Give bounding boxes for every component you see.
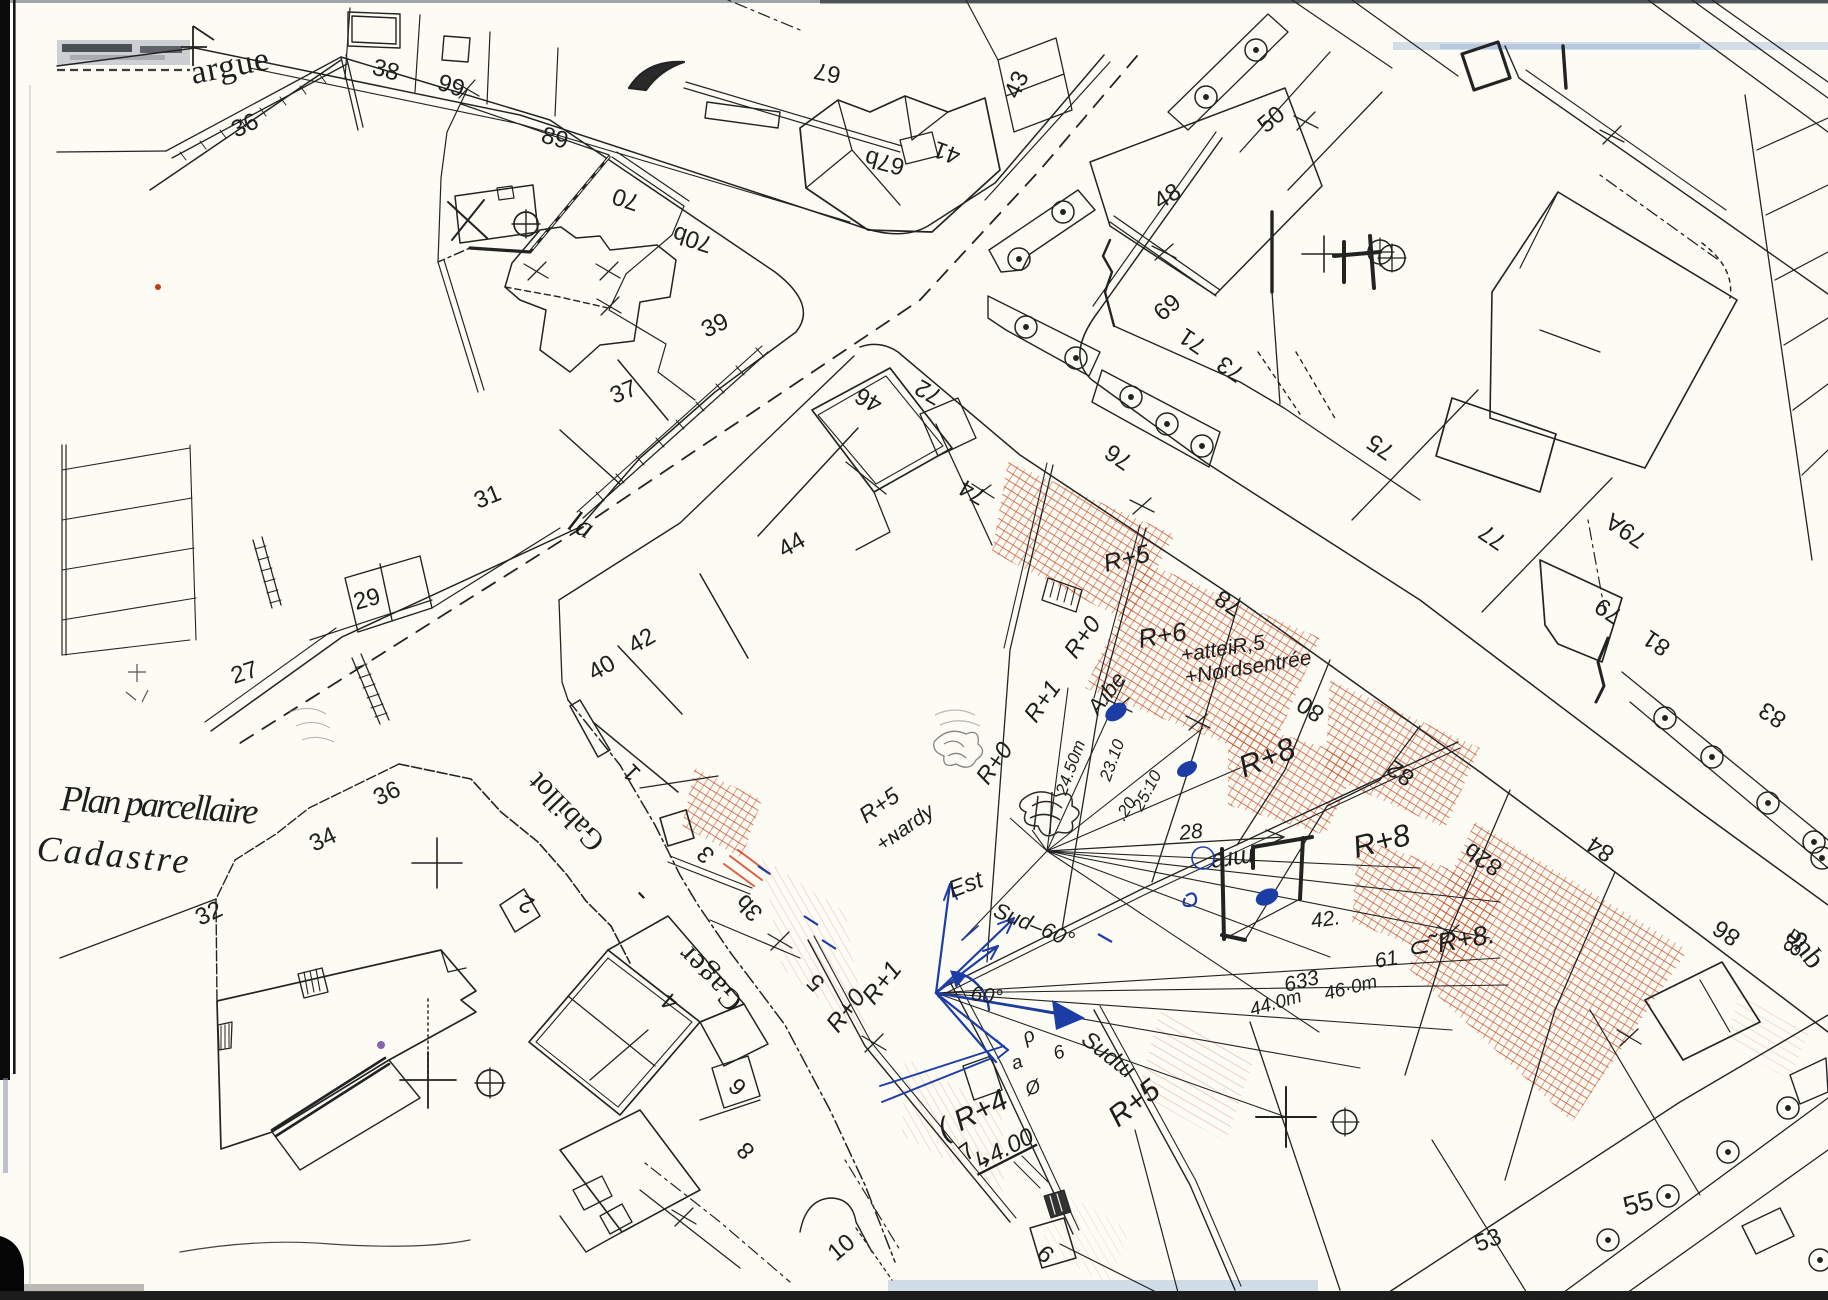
svg-text:42.: 42.	[1309, 906, 1341, 933]
svg-text:28: 28	[1177, 820, 1204, 845]
svg-text:67: 67	[812, 57, 844, 89]
svg-text:60°: 60°	[969, 982, 1004, 1009]
svg-text:aɹɯ: aɹɯ	[1209, 840, 1256, 874]
svg-text:61: 61	[1373, 946, 1400, 973]
